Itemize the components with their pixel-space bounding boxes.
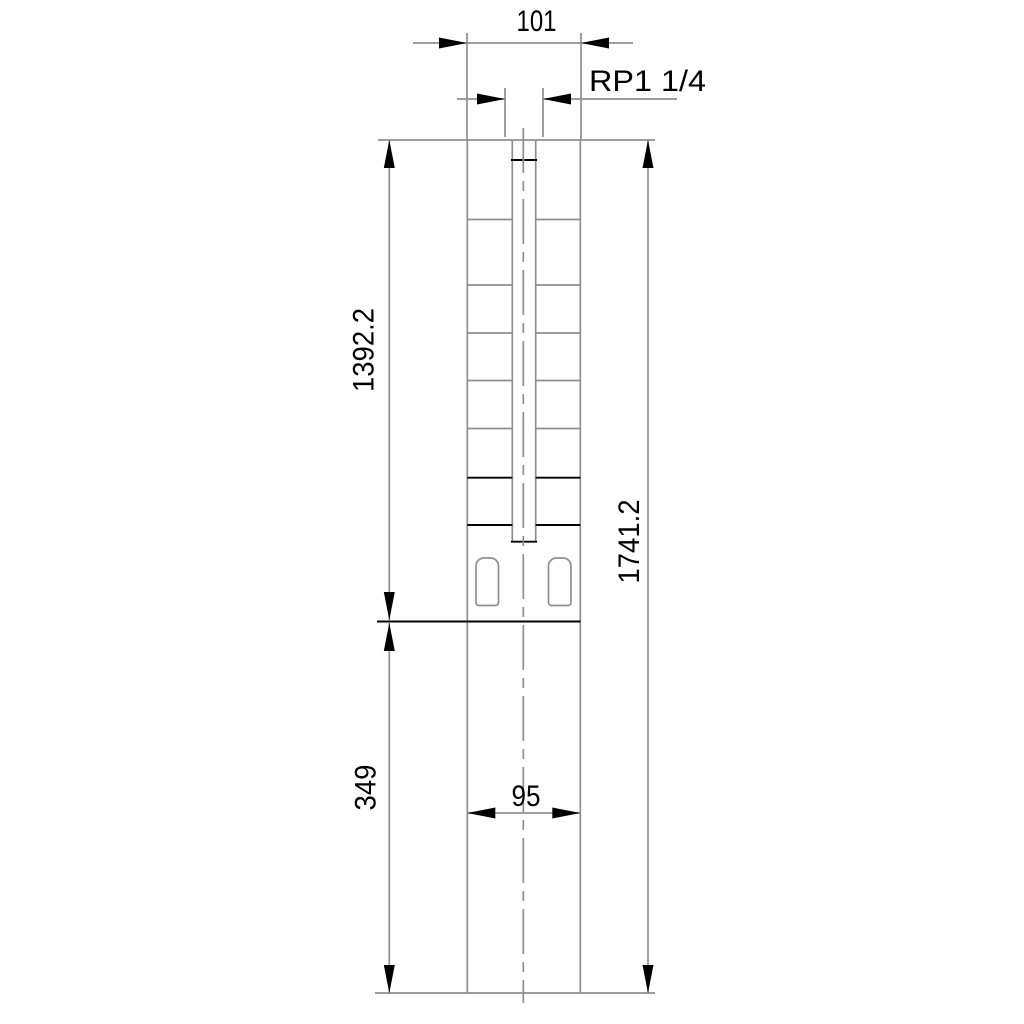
dim-label-1741: 1741.2 <box>613 500 646 584</box>
extension-lines <box>467 33 581 140</box>
arrow-left-icon <box>543 94 571 105</box>
arrow-up-icon <box>384 623 395 651</box>
dim-label-101: 101 <box>517 5 557 38</box>
dim-label-95: 95 <box>512 780 541 813</box>
intake-slot-right <box>548 558 571 606</box>
dim-pump-section-length: 1392.2 <box>348 140 395 620</box>
pump-dimension-drawing: 101 RP1 1/4 1392.2 349 1741.2 95 <box>0 0 1024 1024</box>
arrow-right-icon <box>477 94 505 105</box>
arrow-down-icon <box>384 592 395 620</box>
arrow-up-icon <box>384 140 395 168</box>
dim-label-1392: 1392.2 <box>348 308 381 392</box>
arrow-right-icon <box>439 38 467 49</box>
dim-overall-length: 1741.2 <box>613 140 654 993</box>
dim-label-349: 349 <box>350 765 383 811</box>
drawing-canvas: 101 RP1 1/4 1392.2 349 1741.2 95 <box>0 0 1024 1024</box>
arrow-down-icon <box>643 965 654 993</box>
arrow-left-icon <box>581 38 609 49</box>
intake-slot-left <box>476 558 499 606</box>
arrow-right-icon <box>552 808 580 819</box>
dim-motor-section-length: 349 <box>350 623 395 993</box>
dim-motor-diameter: 95 <box>467 780 580 819</box>
arrow-down-icon <box>384 965 395 993</box>
dim-label-thread: RP1 1/4 <box>589 65 706 98</box>
arrow-up-icon <box>643 140 654 168</box>
arrow-left-icon <box>467 808 495 819</box>
